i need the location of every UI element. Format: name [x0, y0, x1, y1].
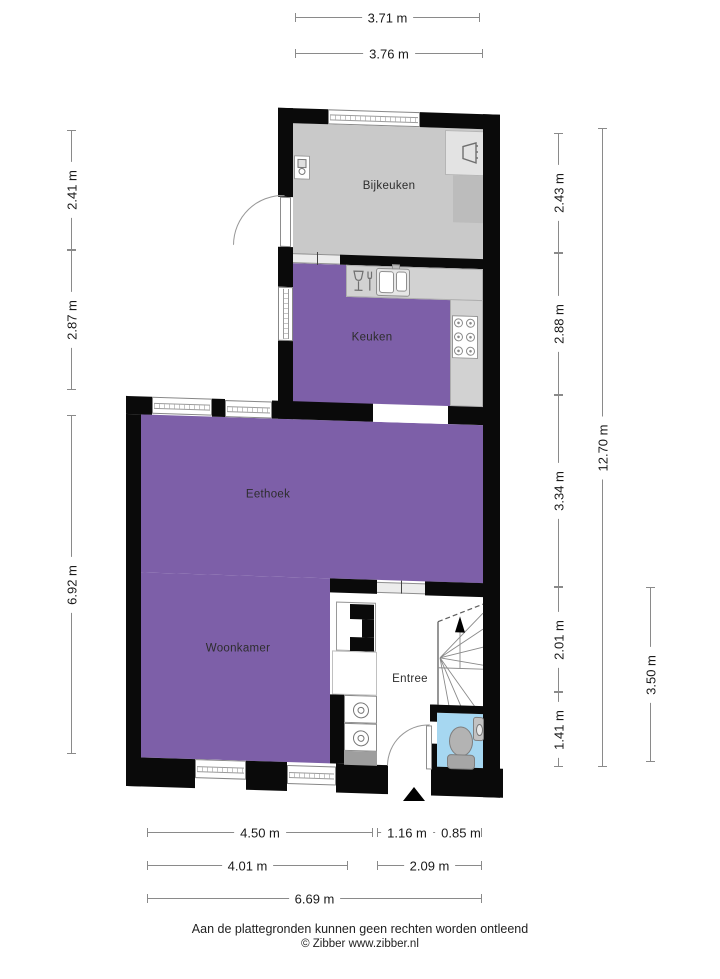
stove-burner: [466, 319, 475, 328]
wall-eethoek-top-2: [212, 399, 225, 417]
wall-toilet-left-1: [430, 704, 437, 721]
dim-bottom-1c: 0.85 m: [440, 832, 482, 833]
sink-icon: [459, 139, 481, 167]
wall-eethoek-top-3: [272, 401, 373, 422]
disclaimer-text: Aan de plattegronden kunnen geen rechten…: [0, 922, 720, 936]
woonkamer-window-1: [195, 759, 246, 780]
stove-burner: [454, 332, 463, 341]
wall-eethoek-top-4: [448, 406, 483, 425]
chimney-block-top: [350, 604, 374, 620]
dim-right-total: 12.70 m: [602, 128, 603, 767]
dim-bottom-2b: 2.09 m: [377, 865, 482, 866]
chimney-block-bottom: [350, 637, 374, 652]
bijkeuken-door-arc: [233, 193, 285, 247]
wall-right: [483, 114, 500, 798]
eethoek-window-1: [152, 397, 212, 416]
room-label-woonkamer: Woonkamer: [206, 642, 270, 654]
stairs-icon: [437, 596, 483, 709]
kitchen-sink-basin-left: [379, 271, 394, 293]
wall-bottom-3: [336, 764, 388, 795]
toilet-tank: [447, 754, 475, 770]
eethoek-entree-passage: [377, 582, 425, 595]
room-label-entree: Entree: [392, 673, 428, 685]
wall-bottom-4: [431, 767, 503, 798]
dishwasher-icon: [351, 269, 375, 295]
wall-bottom-2: [246, 761, 287, 791]
dim-bottom-2a: 4.01 m: [147, 865, 348, 866]
dim-right-2: 2.88 m: [558, 253, 559, 395]
dim-right-1: 2.43 m: [558, 133, 559, 253]
bijkeuken-keuken-passage: [293, 253, 340, 264]
kitchen-tap: [392, 264, 400, 269]
dim-right-partial: 3.50 m: [650, 587, 651, 762]
stove-burner: [466, 333, 475, 342]
chimney-block-right: [362, 619, 374, 637]
dim-bottom-3: 6.69 m: [147, 898, 482, 899]
wall-bottom-1: [126, 757, 195, 788]
floorplan-page: { "page": { "footer_line1": "Aan de plat…: [0, 0, 720, 960]
dim-left-3: 6.92 m: [71, 415, 72, 754]
wall-appliance-left: [330, 694, 344, 763]
eethoek-window-2: [225, 400, 272, 418]
keuken-eethoek-opening: [373, 404, 448, 424]
eethoek-floor: [141, 414, 485, 583]
dim-top-1: 3.71 m: [295, 17, 480, 18]
dim-bottom-1a: 4.50 m: [147, 832, 373, 833]
wall-entree-top-2: [425, 581, 483, 597]
appliance-counter: [344, 751, 377, 766]
dim-bottom-1b: 1.16 m: [377, 832, 437, 833]
wall-left-upper-1: [278, 108, 293, 197]
hand-basin-icon: [473, 717, 484, 741]
boiler-icon: [297, 158, 307, 176]
wall-left-lower: [126, 414, 141, 786]
bijkeuken-window: [328, 109, 420, 127]
wall-eethoek-top-1: [126, 396, 152, 415]
wall-toilet-top: [430, 704, 483, 714]
dim-right-5: 1.41 m: [558, 692, 559, 767]
toilet-icon: [449, 726, 473, 757]
kitchen-sink-basin-right: [396, 271, 407, 291]
room-label-bijkeuken: Bijkeuken: [363, 180, 416, 192]
copyright-text: © Zibber www.zibber.nl: [0, 938, 720, 950]
woonkamer-floor: [141, 572, 330, 763]
room-label-eethoek: Eethoek: [246, 488, 290, 500]
woonkamer-window-2: [287, 765, 336, 786]
stove-burner: [454, 346, 463, 355]
keuken-window: [278, 287, 293, 341]
wall-entree-top-1: [330, 578, 377, 593]
dim-left-1: 2.41 m: [71, 130, 72, 250]
dim-top-2: 3.76 m: [295, 53, 483, 54]
dim-left-2: 2.87 m: [71, 250, 72, 390]
entrance-arrow-icon: [403, 787, 425, 801]
dim-right-4: 2.01 m: [558, 587, 559, 692]
closet-nook: [332, 650, 377, 695]
washer-icon: [344, 695, 377, 724]
dryer-washer-icon: [344, 723, 377, 752]
room-label-keuken: Keuken: [352, 332, 393, 344]
dim-right-3: 3.34 m: [558, 395, 559, 587]
stove-burner: [454, 318, 463, 327]
stove-burner: [466, 347, 475, 356]
bijkeuken-counter: [453, 175, 485, 223]
wall-left-upper-2: [278, 247, 293, 287]
